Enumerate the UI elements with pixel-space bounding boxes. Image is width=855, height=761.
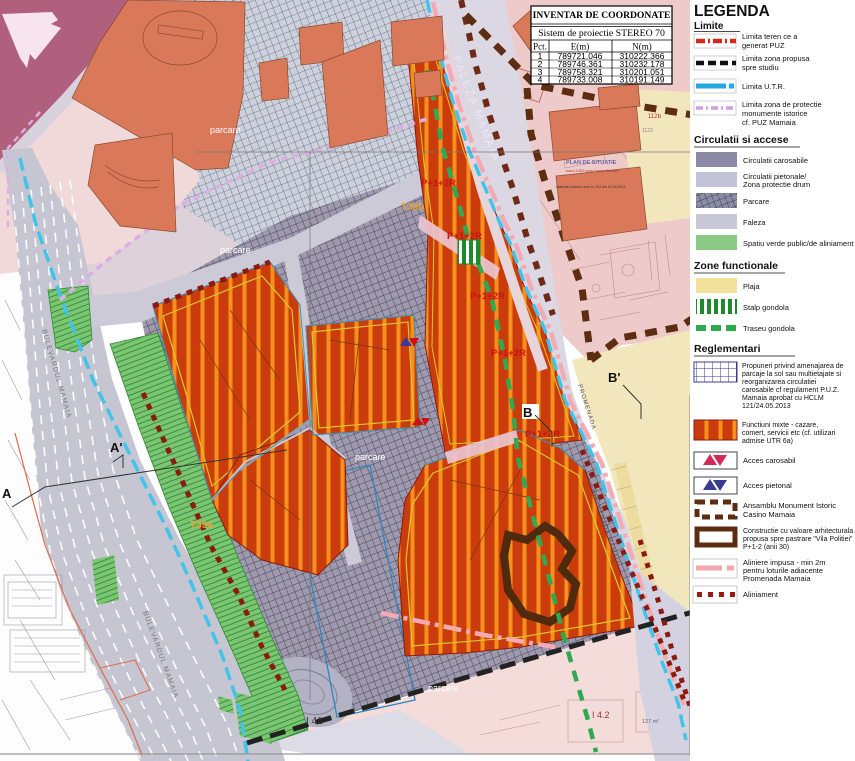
svg-text:Aliniament: Aliniament xyxy=(743,590,779,599)
svg-text:P+1-2 (anii 30): P+1-2 (anii 30) xyxy=(743,544,789,551)
svg-text:admise UTR 6a): admise UTR 6a) xyxy=(742,438,793,445)
svg-text:parcare: parcare xyxy=(210,125,241,135)
svg-text:comert, servicii etc (cf. util: comert, servicii etc (cf. utilizari xyxy=(742,430,836,437)
svg-text:Faleza: Faleza xyxy=(743,218,766,227)
svg-text:Ansamblu Monument Istoric: Ansamblu Monument Istoric xyxy=(743,501,836,510)
svg-text:cf. PUZ Mamaia: cf. PUZ Mamaia xyxy=(742,118,797,127)
svg-text:I 4.2: I 4.2 xyxy=(592,710,610,720)
svg-text:Acces carosabil: Acces carosabil xyxy=(743,456,796,465)
svg-text:Zone functionale: Zone functionale xyxy=(694,260,778,272)
svg-text:Plaja: Plaja xyxy=(743,282,761,291)
svg-text:Propuneri privind amenajarea d: Propuneri privind amenajarea de xyxy=(742,363,844,370)
svg-text:generat PUZ: generat PUZ xyxy=(742,41,785,50)
svg-text:Limita teren ce a: Limita teren ce a xyxy=(742,32,798,41)
svg-text:parcaje la sol sau multietajat: parcaje la sol sau multietajate si xyxy=(742,371,842,378)
svg-text:spre studiu: spre studiu xyxy=(742,63,779,72)
svg-text:PLAN DE SITUATIE: PLAN DE SITUATIE xyxy=(566,160,617,166)
svg-text:B: B xyxy=(523,405,532,420)
svg-text:Constructie cu valoare arhitec: Constructie cu valoare arhitecturala xyxy=(743,528,853,535)
svg-text:Pct.: Pct. xyxy=(533,42,547,52)
svg-text:127 m²: 127 m² xyxy=(642,719,659,725)
svg-text:Acces pietonal: Acces pietonal xyxy=(743,481,792,490)
svg-text:N(m): N(m) xyxy=(632,42,652,52)
svg-text:I 41: I 41 xyxy=(306,716,323,727)
svg-text:Circulatii si accese: Circulatii si accese xyxy=(694,134,789,146)
svg-text:Parcare: Parcare xyxy=(743,197,769,206)
svg-text:monumente istorice: monumente istorice xyxy=(742,109,807,118)
svg-text:parcare: parcare xyxy=(355,452,386,462)
svg-text:T39a: T39a xyxy=(190,520,213,531)
svg-text:B': B' xyxy=(608,370,620,385)
svg-text:Spatiu verde public/de aliniam: Spatiu verde public/de aliniament xyxy=(743,239,854,248)
svg-text:Promenada Mamaia: Promenada Mamaia xyxy=(743,574,811,583)
svg-text:P+1+2R: P+1+2R xyxy=(470,291,505,302)
svg-text:Zona protectie drum: Zona protectie drum xyxy=(743,180,810,189)
svg-text:scara 1:500 zona Casino Mamaia: scara 1:500 zona Casino Mamaia xyxy=(566,169,618,173)
svg-text:112b: 112b xyxy=(648,114,662,120)
svg-text:parcare: parcare xyxy=(428,683,459,693)
svg-text:Circulatii carosabile: Circulatii carosabile xyxy=(743,156,808,165)
svg-text:P+1+2R: P+1+2R xyxy=(447,231,482,242)
svg-text:P+1+2R: P+1+2R xyxy=(491,348,526,359)
svg-text:E(m): E(m) xyxy=(571,42,590,52)
svg-text:propusa spre pastrare "Vila Po: propusa spre pastrare "Vila Politiei" xyxy=(743,536,853,543)
svg-text:carosabile cf regulament P.U.Z: carosabile cf regulament P.U.Z. xyxy=(742,387,839,394)
svg-text:A': A' xyxy=(110,440,122,455)
svg-text:1123: 1123 xyxy=(642,128,653,134)
svg-text:Limita zona de protectie: Limita zona de protectie xyxy=(742,100,822,109)
svg-text:T39b: T39b xyxy=(401,202,424,213)
svg-text:Functiuni mixte - cazare,: Functiuni mixte - cazare, xyxy=(742,422,818,429)
svg-text:A: A xyxy=(2,486,12,501)
svg-text:Limite: Limite xyxy=(694,21,724,32)
svg-text:Traseu gondola: Traseu gondola xyxy=(743,324,796,333)
svg-text:Casino Mamaia: Casino Mamaia xyxy=(743,510,796,519)
svg-text:LEGENDA: LEGENDA xyxy=(694,3,770,20)
svg-text:Mamaia aprobat cu HCLM: Mamaia aprobat cu HCLM xyxy=(742,395,824,402)
svg-text:parcare: parcare xyxy=(220,245,251,255)
svg-text:P+1+2R: P+1+2R xyxy=(525,429,560,440)
svg-text:INVENTAR DE COORDONATE: INVENTAR DE COORDONATE xyxy=(533,10,671,21)
svg-text:Limita U.T.R.: Limita U.T.R. xyxy=(742,82,785,91)
svg-text:reorganizarea circulatiei: reorganizarea circulatiei xyxy=(742,379,817,386)
svg-text:elaborat conform aviz nr. 234: elaborat conform aviz nr. 234 din 12.04.… xyxy=(556,185,625,189)
svg-text:P+1+2R: P+1+2R xyxy=(421,178,456,189)
svg-text:121/24.05.2013: 121/24.05.2013 xyxy=(742,403,791,410)
svg-text:Reglementari: Reglementari xyxy=(694,343,761,355)
svg-text:Sistem de proiectie STEREO 70: Sistem de proiectie STEREO 70 xyxy=(538,28,665,39)
svg-text:Stalp gondola: Stalp gondola xyxy=(743,303,790,312)
svg-text:Limita zona propusa: Limita zona propusa xyxy=(742,54,810,63)
